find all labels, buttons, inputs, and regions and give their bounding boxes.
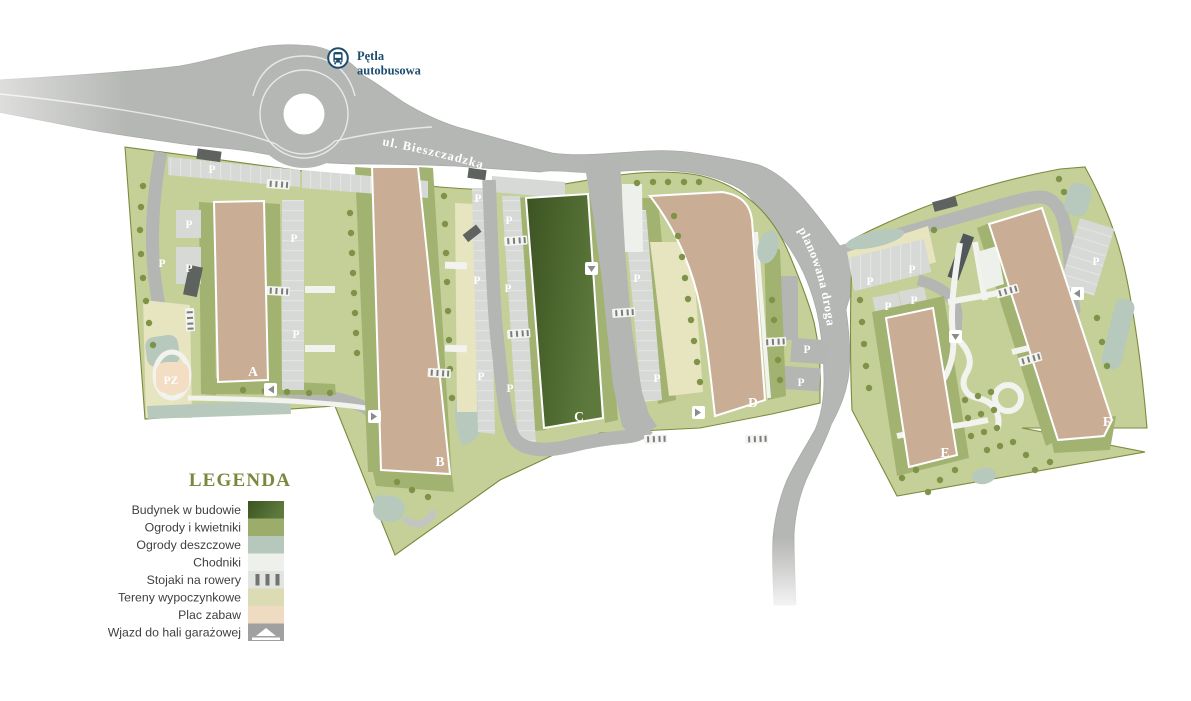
svg-text:E: E [940, 445, 949, 460]
svg-text:P: P [506, 383, 513, 395]
svg-text:Tereny wypoczynkowe: Tereny wypoczynkowe [118, 591, 241, 605]
svg-text:C: C [574, 409, 584, 424]
svg-text:P: P [208, 164, 215, 176]
svg-text:P: P [633, 273, 640, 285]
svg-text:P: P [185, 219, 192, 231]
svg-text:autobusowa: autobusowa [357, 64, 422, 78]
svg-text:P: P [803, 344, 810, 356]
svg-text:P: P [290, 233, 297, 245]
svg-text:P: P [292, 329, 299, 341]
svg-text:Ogrody deszczowe: Ogrody deszczowe [136, 538, 241, 552]
svg-text:P: P [866, 276, 873, 288]
svg-text:Ogrody i kwietniki: Ogrody i kwietniki [145, 521, 241, 535]
svg-text:P: P [1092, 256, 1099, 268]
svg-text:P: P [505, 215, 512, 227]
svg-text:PZ: PZ [164, 375, 179, 387]
svg-text:P: P [908, 264, 915, 276]
svg-text:P: P [504, 283, 511, 295]
svg-text:P: P [158, 258, 165, 270]
svg-text:Budynek w budowie: Budynek w budowie [132, 503, 242, 517]
svg-text:P: P [474, 193, 481, 205]
svg-text:B: B [435, 454, 444, 469]
svg-text:P: P [477, 371, 484, 383]
svg-text:Stojaki na rowery: Stojaki na rowery [147, 573, 242, 587]
svg-text:P: P [653, 373, 660, 385]
svg-text:Chodniki: Chodniki [193, 556, 241, 570]
svg-text:P: P [797, 377, 804, 389]
svg-text:A: A [248, 364, 258, 379]
svg-text:P: P [473, 275, 480, 287]
svg-text:LEGENDA: LEGENDA [189, 470, 291, 491]
svg-text:Pętla: Pętla [357, 49, 385, 63]
svg-text:Plac zabaw: Plac zabaw [178, 608, 241, 622]
svg-text:P: P [884, 301, 891, 313]
svg-text:F: F [1103, 414, 1111, 429]
svg-text:P: P [185, 263, 192, 275]
svg-text:D: D [748, 395, 758, 410]
svg-text:P: P [910, 295, 917, 307]
svg-text:Wjazd do hali garażowej: Wjazd do hali garażowej [108, 626, 241, 640]
